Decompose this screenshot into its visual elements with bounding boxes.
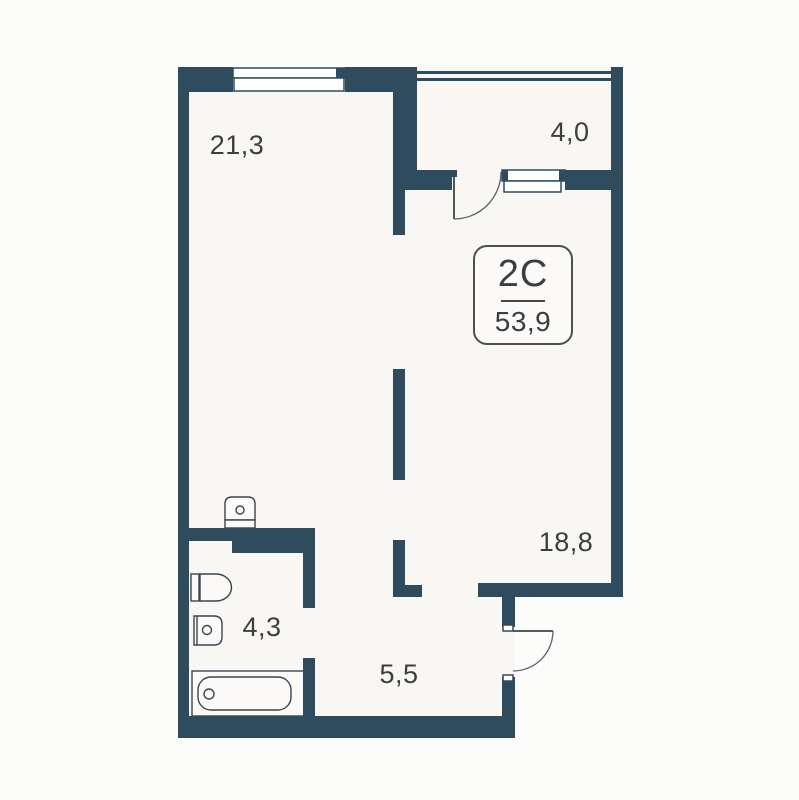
- room-label-living-kitchen: 21,3: [210, 132, 265, 159]
- floor-plan: 21,3 4,0 18,8 4,3 5,5 2C 53,9: [0, 0, 799, 800]
- room-label-bathroom: 4,3: [242, 614, 281, 641]
- room-label-hallway: 5,5: [379, 661, 418, 688]
- room-label-balcony: 4,0: [550, 119, 589, 146]
- apartment-type-label: 2C: [498, 255, 549, 293]
- sink: [194, 616, 222, 645]
- top-window: [233, 68, 345, 91]
- balcony-parapet: [417, 71, 611, 74]
- badge-divider: [501, 300, 545, 302]
- apartment-type-badge: 2C 53,9: [473, 245, 573, 345]
- toilet: [191, 574, 232, 601]
- room-label-bedroom: 18,8: [539, 529, 594, 556]
- balcony-window: [502, 170, 565, 192]
- total-area-label: 53,9: [495, 308, 552, 336]
- washing-machine: [225, 497, 255, 528]
- bathtub: [192, 671, 304, 716]
